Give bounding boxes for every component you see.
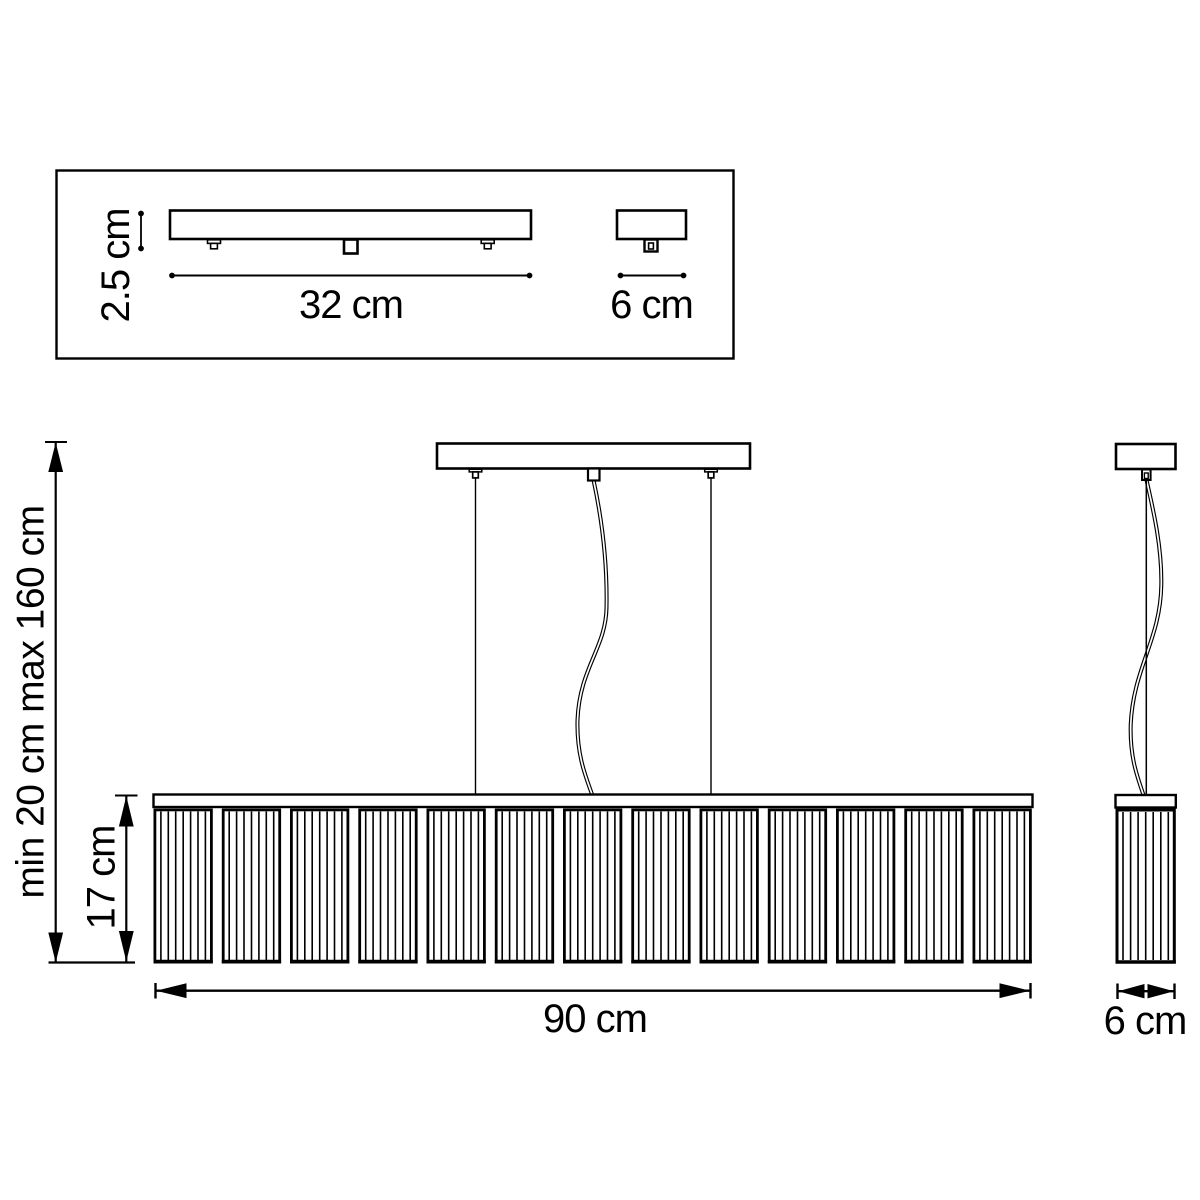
svg-text:min 20 cm max 160 cm: min 20 cm max 160 cm bbox=[10, 505, 53, 898]
svg-text:2.5 cm: 2.5 cm bbox=[94, 208, 138, 322]
svg-text:6 cm: 6 cm bbox=[610, 283, 693, 327]
svg-text:90 cm: 90 cm bbox=[543, 997, 647, 1041]
svg-text:32 cm: 32 cm bbox=[299, 283, 403, 327]
svg-text:17 cm: 17 cm bbox=[80, 826, 124, 930]
svg-text:6 cm: 6 cm bbox=[1104, 999, 1187, 1043]
